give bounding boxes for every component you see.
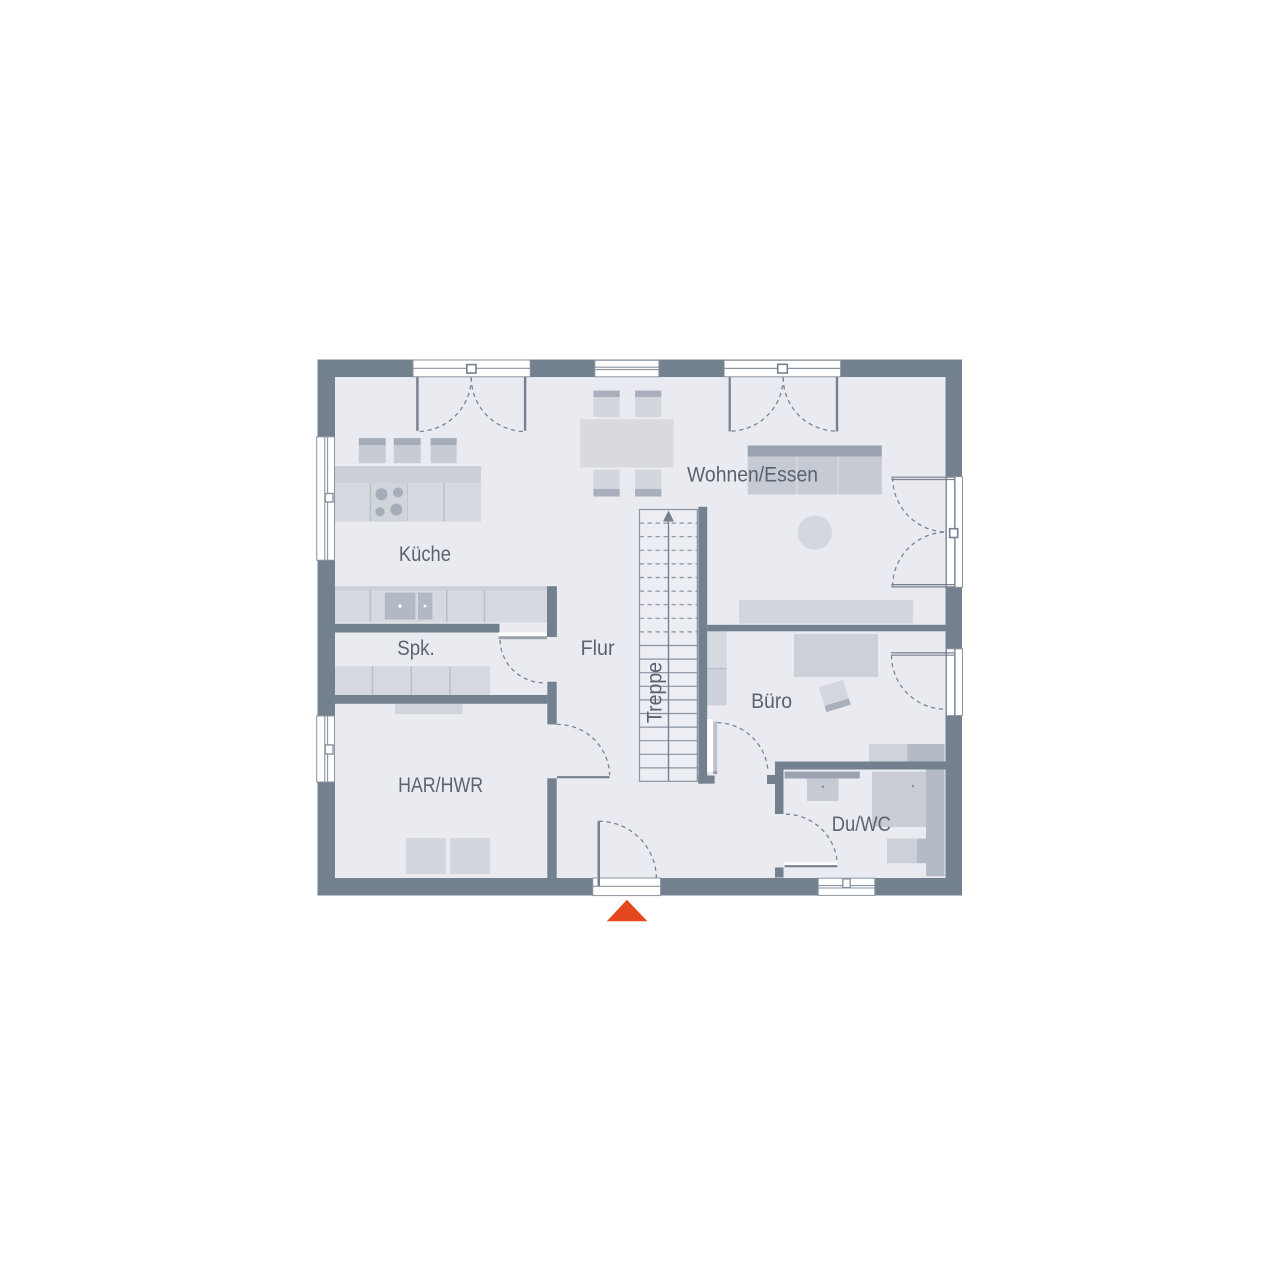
svg-text:Spk.: Spk. [397, 637, 435, 660]
svg-text:HAR/HWR: HAR/HWR [398, 774, 483, 797]
svg-text:Wohnen/Essen: Wohnen/Essen [687, 463, 818, 486]
svg-text:Küche: Küche [399, 543, 451, 566]
svg-text:Treppe: Treppe [644, 662, 667, 723]
svg-text:Büro: Büro [751, 690, 792, 713]
svg-text:Du/WC: Du/WC [832, 813, 891, 836]
svg-text:Flur: Flur [581, 637, 615, 660]
